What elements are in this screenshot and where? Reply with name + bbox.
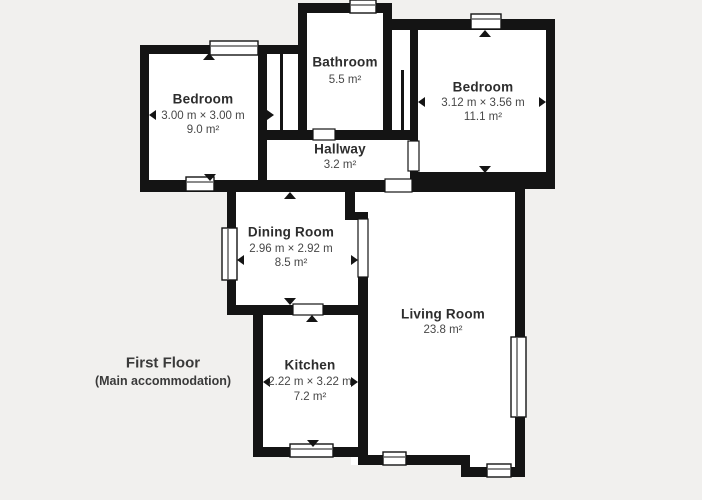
- wall-segment: [280, 54, 283, 132]
- window-symbol: [290, 444, 333, 457]
- room-floors: [145, 8, 551, 477]
- room-floor-kitchen: [258, 308, 363, 452]
- door-opening: [408, 141, 419, 171]
- door-opening: [313, 129, 335, 140]
- room-floor-hallway: [262, 135, 414, 183]
- wall-segment: [546, 19, 555, 187]
- window-symbol: [222, 228, 237, 280]
- wall-segment: [410, 172, 555, 189]
- window-symbol: [383, 452, 406, 465]
- room-floor-bathroom: [302, 8, 388, 135]
- room-floor-living-room: [351, 183, 521, 465]
- room-floor-dining-room: [231, 183, 358, 310]
- wall-segment: [298, 3, 392, 13]
- wall-segment: [401, 70, 404, 132]
- window-symbol: [210, 41, 258, 55]
- wall-segment: [258, 54, 267, 192]
- window-symbol: [487, 464, 511, 477]
- window-symbol: [471, 14, 501, 29]
- window-symbol: [511, 337, 526, 417]
- room-floor-bedroom-right: [414, 25, 551, 177]
- door-opening: [385, 179, 412, 192]
- door-opening: [358, 219, 368, 277]
- wall-segment: [267, 130, 418, 140]
- wall-segment: [253, 305, 263, 457]
- wall-segment: [140, 45, 149, 192]
- wall-segment: [515, 180, 525, 477]
- floor-plan-drawing: [0, 0, 702, 500]
- door-opening: [293, 304, 323, 315]
- wall-segment: [298, 3, 307, 140]
- wall-segment: [358, 455, 470, 465]
- room-floor-bedroom-left: [145, 50, 263, 185]
- window-symbol: [350, 0, 376, 13]
- floor-plan-canvas: Bedroom 3.00 m × 3.00 m 9.0 m² Bathroom …: [0, 0, 702, 500]
